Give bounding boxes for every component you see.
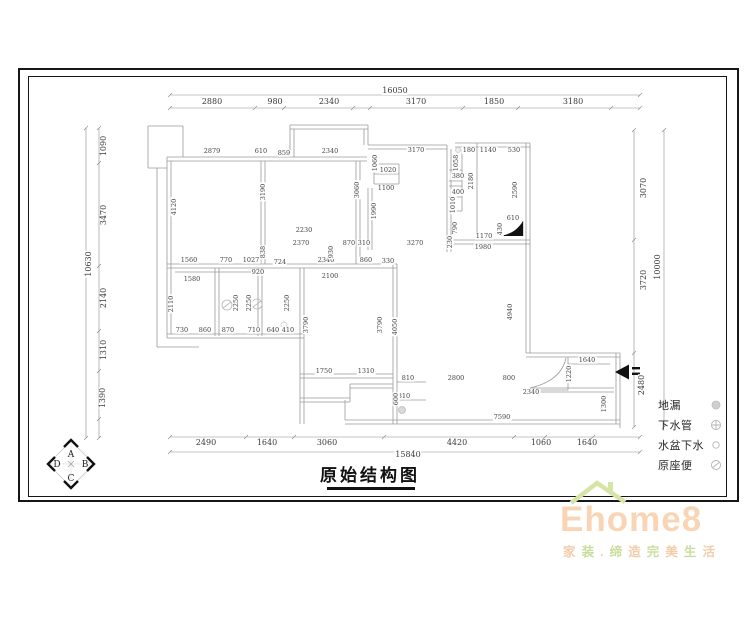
legend: 地漏 下水管 水盆下水 原座便 bbox=[658, 395, 722, 475]
sink-drain-symbol bbox=[281, 322, 287, 328]
toilet-icon bbox=[710, 459, 722, 471]
compass-icon: A B C D bbox=[40, 432, 104, 496]
drain-pipe-icon bbox=[710, 419, 722, 431]
tagline-char: 家 bbox=[563, 546, 576, 559]
legend-label: 地漏 bbox=[658, 397, 681, 413]
drawing-title: 原始结构图 bbox=[270, 461, 470, 486]
legend-label: 原座便 bbox=[658, 457, 693, 473]
compass-letter-south: C bbox=[68, 474, 75, 484]
legend-label: 下水管 bbox=[658, 417, 693, 433]
legend-item-floor-drain: 地漏 bbox=[658, 395, 722, 415]
tagline-char: 完 bbox=[647, 546, 660, 559]
floor-drain-icon bbox=[710, 399, 722, 411]
tagline-char: 造 bbox=[628, 546, 641, 559]
brand-watermark: Ehome8 家装.缔造完美生活 bbox=[556, 474, 756, 570]
toilet-symbol bbox=[222, 300, 232, 310]
compass-letter-west: D bbox=[53, 460, 60, 470]
sink-drain-icon bbox=[710, 439, 722, 451]
legend-item-toilet: 原座便 bbox=[658, 455, 722, 475]
tagline-char: 美 bbox=[665, 546, 678, 559]
legend-item-drain-pipe: 下水管 bbox=[658, 415, 722, 435]
compass-letter-east: B bbox=[82, 460, 89, 470]
title-underline bbox=[327, 487, 415, 490]
compass-letter-north: A bbox=[67, 450, 75, 460]
wall-lines bbox=[148, 125, 620, 428]
legend-item-sink-drain: 水盆下水 bbox=[658, 435, 722, 455]
door-swing-arc bbox=[530, 358, 566, 388]
toilet-symbol bbox=[252, 299, 262, 309]
tagline-char: 缔 bbox=[610, 546, 623, 559]
tagline-char: 生 bbox=[684, 546, 697, 559]
floor-drain-symbol bbox=[399, 407, 406, 414]
tagline-char: 活 bbox=[702, 546, 715, 559]
tagline-char: 装 bbox=[582, 546, 595, 559]
floor-plan-sheet: 1605028809802340317018503180109034701063… bbox=[0, 0, 756, 630]
brand-tagline: 家装.缔造完美生活 bbox=[563, 546, 715, 559]
brand-name: Ehome8 bbox=[560, 502, 702, 537]
door-wedge-icon bbox=[500, 221, 523, 236]
tagline-char: . bbox=[600, 546, 603, 559]
drain-symbol-small bbox=[456, 148, 461, 153]
entry-arrow-icon bbox=[615, 365, 640, 380]
legend-label: 水盆下水 bbox=[658, 437, 704, 453]
